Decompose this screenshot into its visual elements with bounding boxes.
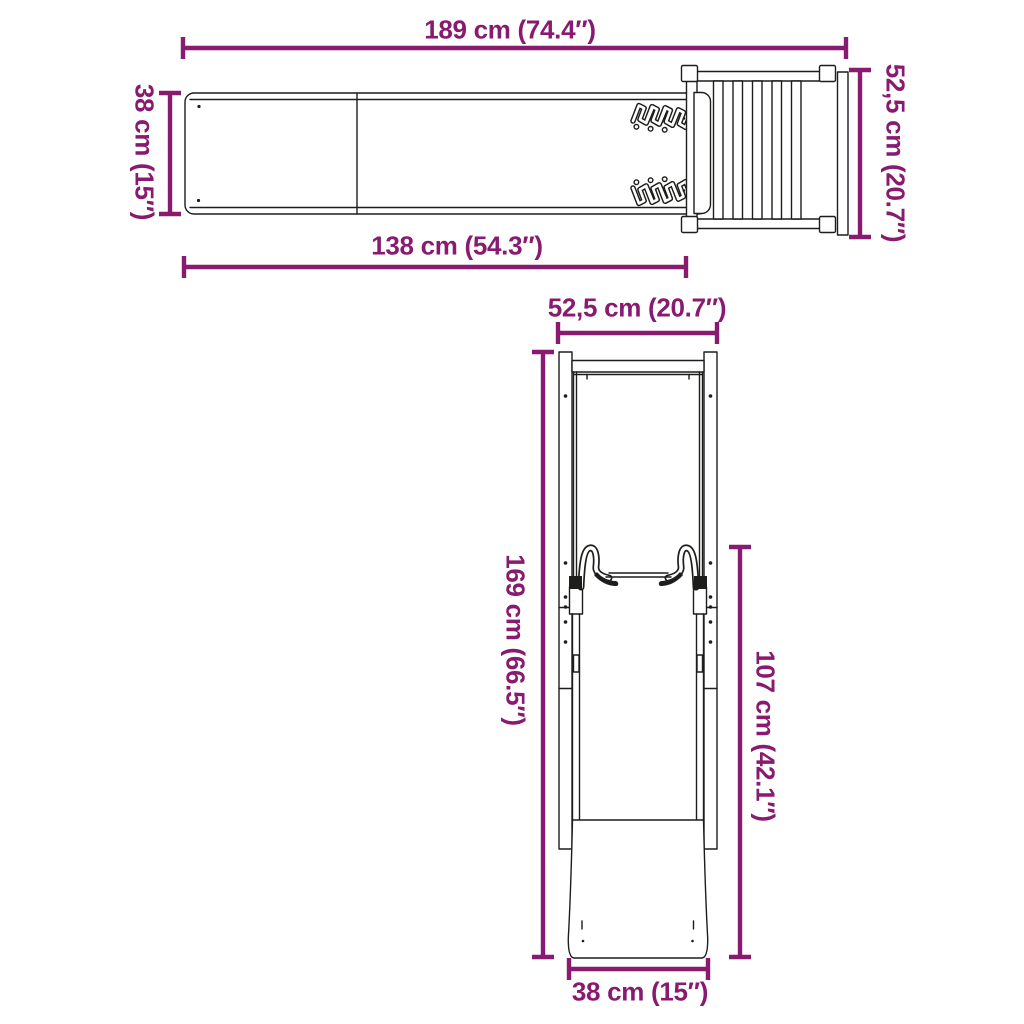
dimension-diagram: 189 cm (74.4″) 38 cm (15″) 52,5 cm (20.7… — [0, 0, 1024, 1024]
dim-line-width — [558, 322, 717, 344]
slide-top-view — [185, 93, 707, 214]
dim-label-front-width: 52,5 cm (20.7″) — [548, 293, 727, 324]
dim-label-platform-depth: 52,5 cm (20.7″) — [880, 64, 911, 243]
clamp-right — [694, 576, 707, 589]
dim-label-total-length: 189 cm (74.4″) — [424, 15, 596, 46]
dim-line-platform-depth — [849, 70, 871, 237]
slide-tongue — [694, 93, 711, 214]
dim-label-base-width: 38 cm (15″) — [572, 977, 708, 1008]
post-screws — [564, 394, 713, 644]
slide-runout — [568, 820, 707, 958]
slide-rails — [570, 372, 707, 820]
slide-handles — [569, 548, 707, 589]
platform-top-view — [682, 66, 849, 236]
front-view-drawing — [532, 322, 751, 980]
dim-label-total-height: 169 cm (66.5″) — [500, 554, 531, 726]
dim-line-slide-width — [159, 93, 181, 214]
dim-label-slide-width: 38 cm (15″) — [129, 84, 160, 220]
dim-label-slide-length: 138 cm (54.3″) — [371, 231, 543, 262]
dim-label-platform-height: 107 cm (42.1″) — [750, 650, 781, 822]
clamp-left — [569, 576, 582, 589]
dim-line-platform-height — [729, 547, 751, 957]
dim-line-total-height — [532, 352, 554, 957]
top-crossbar — [572, 361, 704, 380]
